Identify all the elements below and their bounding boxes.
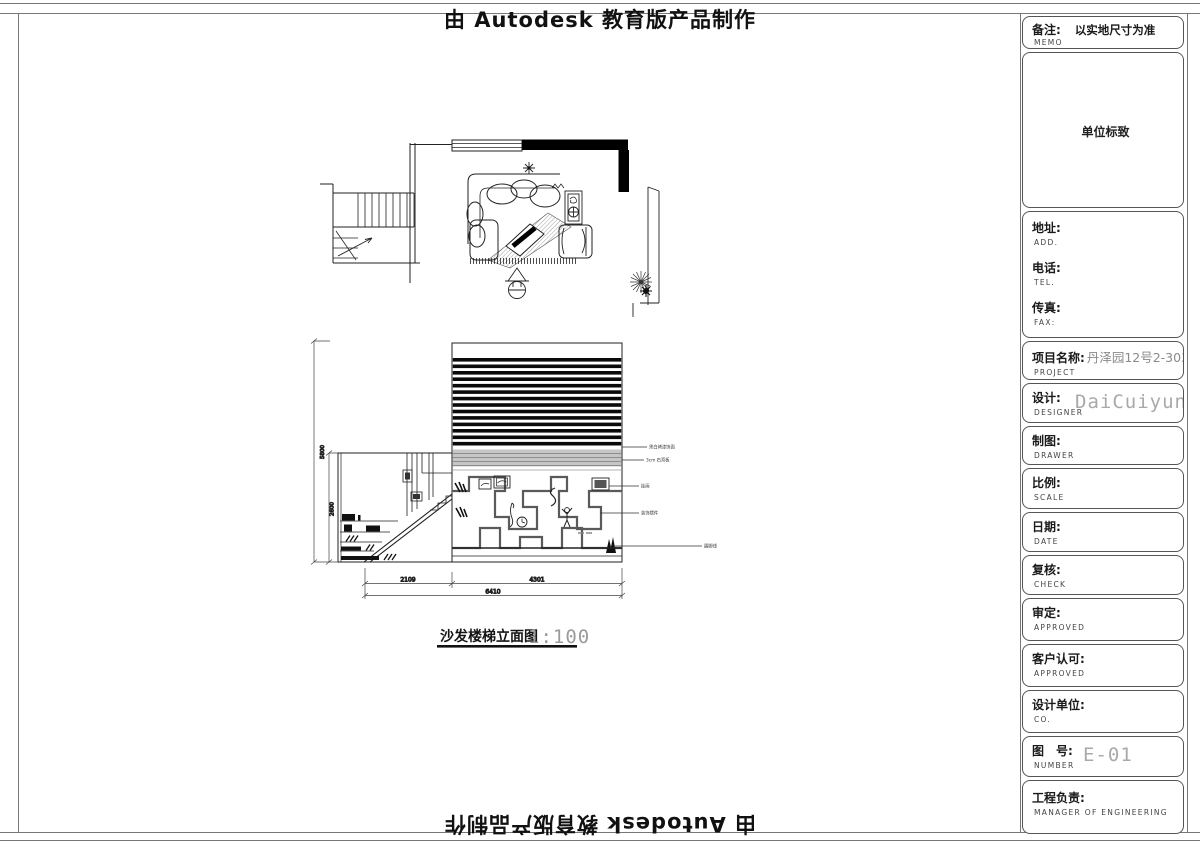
fax-label: 传真:: [1032, 299, 1179, 316]
striped-panel: [453, 358, 621, 446]
tel-label: 电话:: [1032, 259, 1179, 276]
elevation: 黑白烤漆饰面 3cm 石膏板 挂画 装饰摆件 踢脚线 5800 2600 210…: [311, 339, 718, 600]
logo-placeholder-text: 单位标致: [1081, 123, 1129, 140]
address-sub: ADD.: [1034, 238, 1179, 247]
scale-sub: SCALE: [1034, 493, 1179, 502]
manager-sub: MANAGER OF ENGINEERING: [1034, 808, 1179, 817]
drawer-sub: DRAWER: [1034, 451, 1179, 460]
check-sub: CHECK: [1034, 580, 1179, 589]
project-value: 丹泽园12号2-303—: [1087, 347, 1184, 366]
titleblock-memo: 备注: 以实地尺寸为准 MEMO: [1022, 16, 1184, 49]
designer-value: DaiCuiyun: [1075, 391, 1184, 413]
dim-left-outer: 5800: [320, 445, 326, 459]
titleblock-check: 复核: CHECK: [1022, 555, 1184, 595]
approve-sub: APPROVED: [1034, 623, 1179, 632]
annotation-3: 装饰摆件: [641, 510, 659, 517]
caption-underline: [437, 645, 577, 648]
dim-4301: 4301: [529, 577, 544, 584]
titleblock-contact: 地址: ADD. 电话: TEL. 传真: FAX:: [1022, 211, 1184, 338]
company-sub: CO.: [1034, 715, 1179, 724]
fax-sub: FAX:: [1034, 318, 1179, 327]
memo-value: 以实地尺寸为准: [1075, 22, 1156, 38]
titleblock-date: 日期: DATE: [1022, 512, 1184, 552]
plant-large: [630, 271, 652, 297]
view-marker: [505, 268, 529, 299]
scale-label: 比例:: [1032, 474, 1179, 491]
titleblock-project: 项目名称: 丹泽园12号2-303— PROJECT: [1022, 341, 1184, 380]
titleblock-manager: 工程负责: MANAGER OF ENGINEERING: [1022, 780, 1184, 834]
memo-sub: MEMO: [1034, 38, 1179, 47]
titleblock-number: 图 号: NUMBER E-01: [1022, 736, 1184, 777]
company-label: 设计单位:: [1032, 696, 1179, 713]
titleblock-drawer: 制图: DRAWER: [1022, 426, 1184, 465]
title-block: 备注: 以实地尺寸为准 MEMO 单位标致 地址: ADD. 电话: TEL. …: [1022, 16, 1184, 834]
tel-sub: TEL.: [1034, 278, 1179, 287]
sheet: 由 Autodesk 教育版产品制作 由 Autodesk 教育版产品制作: [0, 0, 1200, 843]
approve-label: 审定:: [1032, 604, 1179, 621]
caption-title: 沙发楼梯立面图: [440, 628, 538, 645]
check-label: 复核:: [1032, 561, 1179, 578]
cad-drawing: 黑白烤漆饰面 3cm 石膏板 挂画 装饰摆件 踢脚线 5800 2600 210…: [0, 0, 1020, 843]
caption-scale: 1:100: [528, 626, 590, 648]
gypsum-band: [453, 450, 621, 467]
date-sub: DATE: [1034, 537, 1179, 546]
titleblock-scale: 比例: SCALE: [1022, 468, 1184, 509]
titleblock-logo: 单位标致: [1022, 52, 1184, 208]
plant-small: [523, 162, 535, 174]
annotation-2: 挂画: [641, 483, 650, 490]
annotation-1: 3cm 石膏板: [646, 457, 670, 464]
titleblock-designer: 设计: DESIGNER DaiCuiyun: [1022, 383, 1184, 423]
titleblock-company: 设计单位: CO.: [1022, 690, 1184, 733]
annotation-4: 踢脚线: [704, 543, 718, 550]
drawer-label: 制图:: [1032, 432, 1179, 449]
project-sub: PROJECT: [1034, 368, 1179, 377]
titleblock-divider-line: [1020, 13, 1021, 832]
titleblock-approve: 审定: APPROVED: [1022, 598, 1184, 641]
manager-label: 工程负责:: [1032, 789, 1179, 806]
dim-6410: 6410: [485, 589, 500, 596]
titleblock-client: 客户认可: APPROVED: [1022, 644, 1184, 687]
lower-step-wall: [452, 528, 622, 548]
dim-left-inner: 2600: [330, 502, 336, 516]
number-value: E-01: [1083, 744, 1133, 766]
address-label: 地址:: [1032, 219, 1179, 236]
client-label: 客户认可:: [1032, 650, 1179, 667]
memo-label: 备注:: [1032, 21, 1061, 38]
annotation-0: 黑白烤漆饰面: [649, 444, 675, 451]
right-border-line: [1187, 13, 1188, 832]
client-sub: APPROVED: [1034, 669, 1179, 678]
caption: 沙发楼梯立面图 1:100: [437, 626, 590, 648]
dim-2109: 2109: [400, 577, 415, 584]
floor-plan: [320, 140, 659, 318]
date-label: 日期:: [1032, 518, 1179, 535]
project-label: 项目名称:: [1032, 349, 1085, 366]
